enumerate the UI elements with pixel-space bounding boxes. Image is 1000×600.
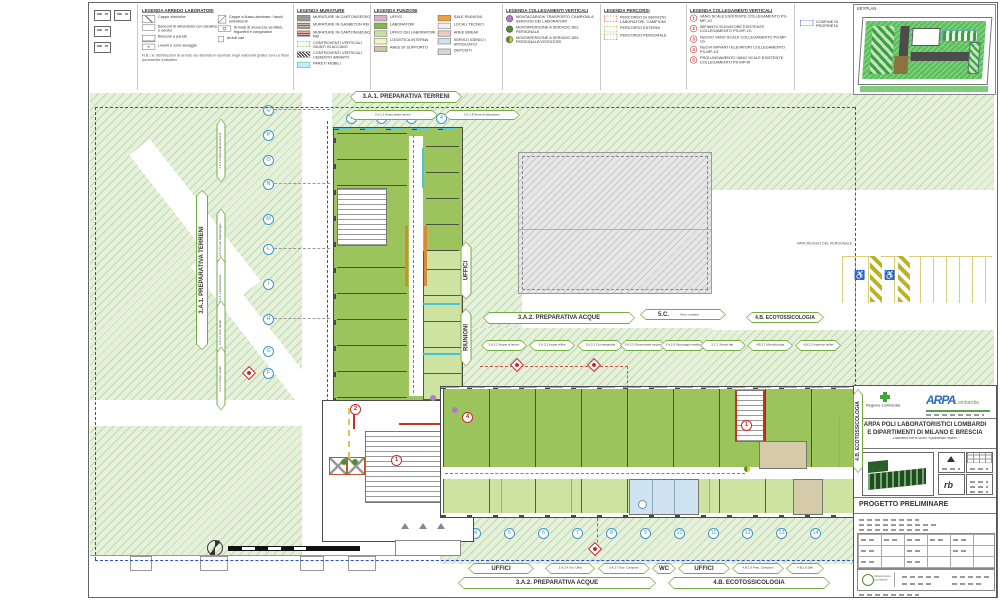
lift-badge: 1 [741,420,752,431]
parking-disabled-stall-1 [870,256,882,302]
grid-letter: G [263,346,274,357]
break-swatch [438,31,451,37]
montacarichi-dot-icon [430,395,436,401]
room-label: 4.B.2.1 Microbiologia [747,340,793,351]
support-room [793,479,823,515]
legend-collegamenti-1: LEGENDA COLLEGAMENTI VERTICALI MONTACARI… [506,8,600,92]
project-phase: PROGETTO PRELIMINARE [859,501,948,508]
uffici-lab-swatch [374,31,387,37]
badge-4-icon: 4 [690,46,697,53]
legend-arredo: LEGENDA ARREDO LABORATORI Cappe chimiche… [142,8,294,92]
entrance-arrow-icon [437,523,445,529]
room-label: 4.B.1.6 Prep. Campioni [732,563,784,574]
property-line-bottom [95,560,860,561]
title-block: Regione Lombardia ARPALombardia ARPA POL… [853,385,997,598]
parking-area: PARCHEGGIO DEL PERSONALE ♿ ♿ [712,190,995,330]
building-vertical-wing [333,127,463,404]
grid-number: 9 [640,528,651,539]
legend-band: LEGENDA ARREDO LABORATORI Cappe chimiche… [90,4,850,92]
controventi-ca-swatch [297,52,310,58]
room-label: 3.A.2.3 Cromatografia [577,340,623,351]
montapersone-visitatori-icon [506,36,513,43]
montacarichi-icon [506,15,513,22]
wing-v-stairwell [337,188,387,246]
montapersone-dot-icon [744,466,750,472]
cartongesso-rei-swatch [297,31,310,37]
titleblock-table [857,533,995,569]
area-label-ecotox-mid: 4.B. ECOTOSSICOLOGIA [746,312,824,323]
wing-v-outline [327,121,328,407]
lawn-left [90,93,332,555]
room-label: 5.C.1 Servizi lab. [700,340,746,351]
percorso-esterni-swatch [604,26,617,32]
confine-swatch [800,20,813,26]
montacarichi-dot-icon [452,407,458,413]
wing-h-stairwell [735,390,765,442]
entrance-porch [395,540,461,556]
percorso-personale-line [413,135,414,393]
north-arrow-icon [207,540,223,556]
area-label-uffici-vert: UFFICI [461,242,472,300]
room-label: 3.A.1.8 Serre di laboratorio [444,110,520,120]
room-label: 3.A.2.8 Stoccaggio reattivi [660,340,706,351]
boundary-stub [200,556,228,571]
keyplan-title: KEYPLAN [857,7,876,11]
area-label-uffici-bl: UFFICI [468,563,534,574]
wc-room [629,479,699,515]
area-label-ecotox-bottom: 4.B. ECOTOSSICOLOGIA [668,577,830,589]
drawing-title: ARPA POLI LABORATORISTICI LOMBARDI E DIP… [858,422,992,443]
grid-leader [274,248,330,249]
depositi-swatch [438,49,451,55]
grid-letter: P [263,130,274,141]
wheelchair-icon: ♿ [884,270,895,281]
lift-badge: 1 [391,455,402,466]
pareti-mobili-swatch [297,62,310,68]
area-label-riunioni-vert: RIUNIONI [461,309,472,367]
bench-symbol-icon [142,25,155,31]
cartongesso-swatch [297,15,310,21]
area-label-prep-terreni-left: 3.A.1. PREPARATIVA TERRENI [196,190,208,350]
room-label: 4.B.1.5 Diffr. [786,563,824,574]
laboratori-swatch [374,23,387,29]
grid-letter: I [263,279,274,290]
grid-number: 8 [606,528,617,539]
lift-badge: 2 [350,404,361,415]
grid-number: 6 [538,528,549,539]
parking-label: PARCHEGGIO DEL PERSONALE [797,242,881,246]
area-label-prep-acque-bottom: 3.A.2. PREPARATIVA ACQUE [458,577,656,589]
grid-number: 14 [810,528,821,539]
lawn-right [832,328,994,388]
badge-5-icon: 5 [690,57,697,64]
drawing-subtitle: Laboratori ARPA MI/BS «Qualificati» Mila… [888,437,962,440]
room-label: 3.A.2.5 Strumentale acque [620,340,666,351]
room-label: 3.A.2.1 Acque reflue [529,340,575,351]
grid-letter: N [263,179,274,190]
montapersone-dot-icon [341,459,347,465]
entrance-arrow-icon [401,523,409,529]
legend-confine: CONFINE DI PROPRIETA' [800,20,850,60]
percorso-personale-swatch [604,34,617,40]
parking-label-wrap: PARCHEGGIO DEL PERSONALE [797,242,937,248]
area-label-ecotox-side: 4.B. ECOTOSSICOLOGIA [853,389,863,473]
badge-2-icon: 2 [690,25,697,32]
controventi-acciaio-swatch [297,41,310,47]
legend-arredo-title: LEGENDA ARREDO LABORATORI [142,8,294,13]
sink-symbol-icon [142,44,155,50]
partner-logo-4 [966,474,993,495]
keyplan-site [858,17,993,85]
arpa-logo: ARPALombardia [926,391,990,415]
grid-leader [274,109,330,110]
grid-number: 5 [504,528,515,539]
grid-letter: F [263,368,274,379]
wing-v-corridor [409,136,423,396]
room-label: 3.A.2.2 Acque di lavoro [481,340,527,351]
logistica-swatch [374,38,387,44]
regione-lombardia-logo: Regione Lombardia [866,392,916,414]
grid-number: 10 [674,528,685,539]
lift-badge: 4 [462,412,473,423]
grid-letter: M [263,214,274,225]
grid-number: 13 [776,528,787,539]
entrance-arrow-icon [419,523,427,529]
grid-number: 7 [572,528,583,539]
misc-furniture-symbol-icon [218,36,224,42]
wing-v-offices [423,251,461,400]
wc-fixture-icon [638,500,647,509]
boundary-stub [348,556,376,571]
room-label: 3.A.1.2 Sottocolture terreni [217,119,226,183]
property-line-left [95,107,96,560]
riunioni-swatch [438,15,451,21]
badge-3-icon: 3 [690,36,697,43]
legend-percorsi: LEGENDA PERCORSI PERCORSO DI SERVIZIO LA… [604,8,688,92]
infrastrutture-lombarde-logo: Infrastrutture Lombarde [860,572,895,587]
area-label-prep-acque-mid: 3.A.2. PREPARATIVA ACQUE [483,312,635,324]
partner-logo-1 [938,452,965,473]
badge-1-icon: 1 [690,15,697,22]
titleblock-signatures: Infrastrutture Lombarde [857,569,995,591]
percorso-servizio-swatch [604,16,617,22]
grid-leader [274,183,330,184]
regione-cross-icon [880,392,890,402]
room-label: 3.A.2.4 Um. Uffici [545,563,595,574]
central-stair [365,431,443,503]
path-horizontal [90,400,304,426]
percorso-personale-line [445,473,745,474]
legend-collegamenti-2: LEGENDA COLLEGAMENTI VERTICALI 1VANO SCA… [690,8,792,92]
servizi-swatch [438,38,451,44]
grid-leader [274,318,330,319]
room-label: 3.A.2.7 Estr. Campioni [598,563,650,574]
compass-icon [947,456,955,462]
property-line-top [95,107,855,108]
montapersone-icon [506,26,513,33]
legend-funzioni: LEGENDA FUNZIONI UFFICI LABORATORI UFFIC… [374,8,502,92]
percorso-servizio-line [480,366,628,367]
area-label-prep-terreni-top: 3.A.1. PREPARATIVA TERRENI [350,91,462,103]
grid-letter: H [263,314,274,325]
area-label-5c: 5.C. Serv. comuni [640,309,726,320]
partner-logo-3: rb [938,474,965,495]
grid-letter: L [263,244,274,255]
parking-disabled-stall-2 [898,256,910,302]
grid-letter: O [263,155,274,166]
building-horizontal-wing [440,386,862,518]
legend-murature: LEGENDA MURATURE MURATURE IN CARTONGESSO… [297,8,371,92]
lawn-bottom [440,516,860,564]
keyplan: KEYPLAN [853,4,996,95]
fridge-symbol-icon [218,26,231,32]
supporto-swatch [374,46,387,52]
room-label: 3.A.1.4 Prep. eluati [217,347,226,411]
uffici-swatch [374,15,387,21]
room-label: 3.A.1.2 Sottocolture terreni [348,110,438,120]
wall-bench-symbol-icon [142,35,155,42]
hood-symbol-icon [142,15,155,23]
laminar-hood-symbol-icon [218,15,226,23]
sheet-index-symbols [94,10,134,64]
lawn-mid-strip [460,135,522,335]
scale-bar [228,546,308,551]
drawing-sheet: LEGENDA ARREDO LABORATORI Cappe chimiche… [0,0,1000,600]
boundary-stub [300,556,324,571]
building-axonometric-thumbnail [862,452,934,496]
percorso-servizio-line [627,366,628,388]
tecnici-swatch [438,23,451,29]
room-label: 4.B.2.2 Ingresso buffer [795,340,841,351]
grid-number: 12 [742,528,753,539]
boundary-stub [130,556,152,571]
gasbeton-swatch [297,23,310,29]
percorso-esterni-line [348,408,350,458]
scale-bar-solid [306,546,360,551]
area-label-uffici-br: UFFICI [678,563,730,574]
support-room [759,441,807,469]
property-line-right [855,107,856,387]
legend-arredo-note: N.B.: le distribuzioni di arredo dei lab… [142,54,294,63]
grid-number: 11 [708,528,719,539]
montapersone-dot-icon [352,459,358,465]
partner-logo-2 [966,452,993,473]
existing-building [518,152,712,294]
